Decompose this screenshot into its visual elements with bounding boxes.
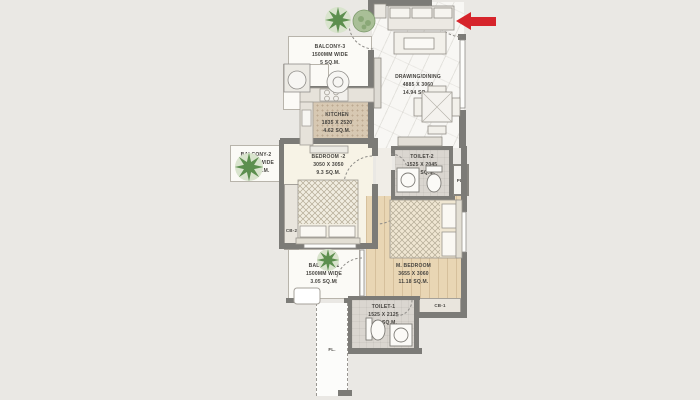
floor-plan-canvas: BALCONY-3 1500MM WIDE 5 SQ.M. DRAWING/DI… (0, 0, 700, 400)
plant-star (325, 7, 351, 33)
fl-label: FL. (328, 347, 335, 352)
cb1-label: CB-1 (434, 303, 445, 308)
kitchen-label: KITCHEN 1835 X 2520 4.62 SQ.M. (322, 112, 353, 145)
lobby-passage (376, 148, 392, 196)
cupboard-cb1: CB-1 (419, 298, 461, 313)
toilet-2-label: TOILET-2 1525 X 2045 3.11 SQ.M. (407, 154, 438, 196)
room-master-bedroom: M. BEDROOM 3655 X 3060 11.18 SQ.M. (366, 196, 461, 313)
pl-label: PL. (457, 178, 465, 183)
ledge-strip: FL. (316, 303, 348, 396)
cb2-label: CB-2 (286, 228, 297, 233)
balcony-2-label: BALCONY-2 1500MM WIDE 2.78 SQ.M. (238, 152, 274, 181)
room-toilet-2: TOILET-2 1525 X 2045 3.11 SQ.M. (395, 150, 449, 196)
plumbing-shaft: PL. (452, 164, 469, 196)
drawing-dining-label: DRAWING/DINING 4885 X 3060 14.94 SQ.M. (395, 74, 441, 148)
room-balcony-2: BALCONY-2 1500MM WIDE 2.78 SQ.M. (230, 145, 282, 182)
room-balcony-1: BALCONY-1 1500MM WIDE 3.05 SQ.M. (288, 249, 360, 299)
cupboard-cb2: CB-2 (284, 184, 299, 250)
room-kitchen: KITCHEN 1835 X 2520 4.62 SQ.M. (300, 88, 374, 145)
balcony-1-label: BALCONY-1 1500MM WIDE 3.05 SQ.M. (306, 263, 342, 298)
bedroom-2-label: BEDROOM -2 3050 X 3050 9.3 SQ.M. (312, 154, 346, 244)
toilet-1-label: TOILET-1 1525 X 2125 3.24 SQ.M. (368, 304, 399, 348)
room-toilet-1: TOILET-1 1525 X 2125 3.24 SQ.M. (352, 300, 415, 348)
room-drawing-dining: DRAWING/DINING 4885 X 3060 14.94 SQ.M. (372, 2, 464, 148)
